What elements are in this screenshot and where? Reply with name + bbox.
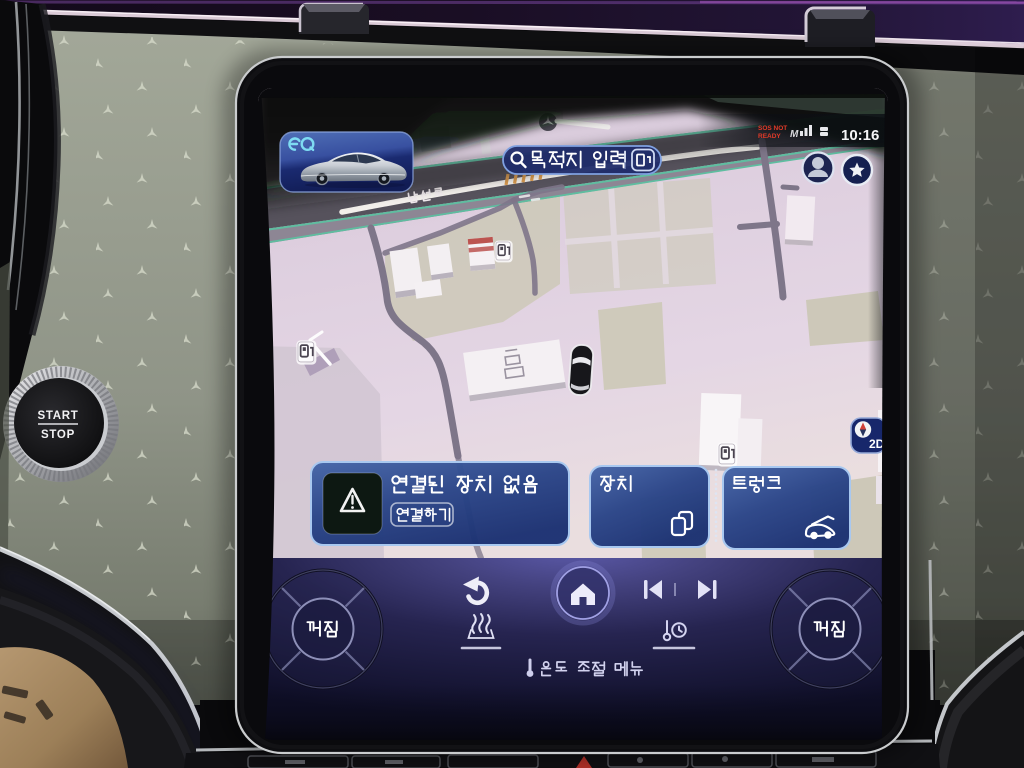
svg-text:SOS NOT: SOS NOT (758, 125, 787, 132)
svg-text:STOP: STOP (41, 429, 75, 441)
svg-text:M: M (790, 129, 799, 140)
svg-text:START: START (38, 410, 79, 422)
svg-text:READY: READY (758, 133, 781, 140)
svg-text:10:16: 10:16 (841, 127, 879, 144)
